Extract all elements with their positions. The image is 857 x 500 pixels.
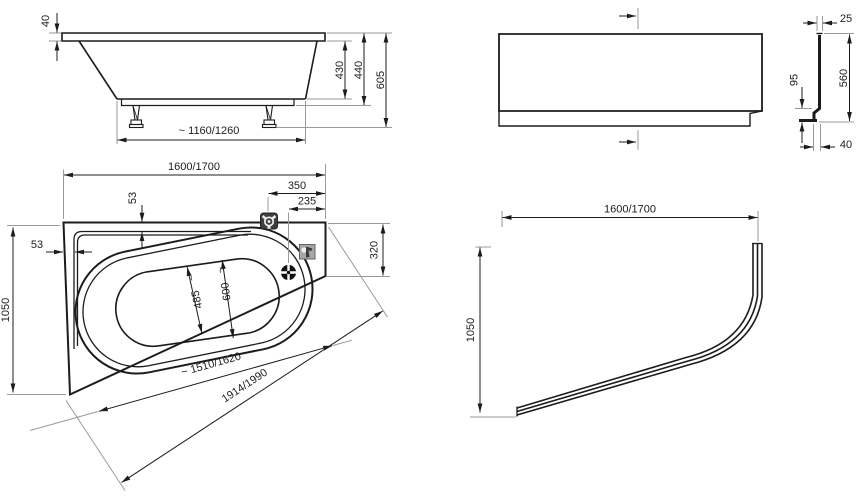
mixer-tap-icon [261, 213, 278, 229]
dim-label-rim-top: 53 [127, 192, 139, 204]
panel-profile-section: 25 560 95 40 [788, 13, 854, 151]
dim-rim-left: 53 [31, 239, 92, 252]
dim-label-well-top: 600 [219, 282, 233, 302]
dim-label-apron-length: 1600/1700 [604, 204, 656, 216]
dim-heights: 430 440 605 [277, 33, 392, 128]
panel-profile [814, 35, 820, 120]
dim-label-panel-foot: 40 [840, 139, 852, 151]
apron-curve-middle [517, 244, 758, 412]
dim-foot-40: 40 [800, 124, 852, 151]
dim-label-rim-thickness: 40 [40, 15, 52, 27]
dim-label-apron-width: 1050 [465, 318, 477, 342]
dim-label-corner-edge: 320 [368, 241, 380, 259]
dim-well-bottom: 485 ~ [185, 267, 205, 333]
dim-label-plan-width: 1050 [0, 298, 12, 322]
front-panel-face [499, 34, 762, 111]
dim-flange-25: 25 [803, 13, 852, 31]
dim-label-step: 95 [788, 74, 800, 86]
dim-label-well-length: ~ 1510/1620 [180, 351, 242, 379]
dim-feet-spacing: ~ 1160/1260 [117, 101, 306, 144]
dim-label-depth: 430 [334, 61, 346, 79]
side-left-wall [79, 41, 117, 99]
dim-well-length: ~ 1510/1620 [30, 340, 352, 430]
dim-panel-height-560: 560 [819, 34, 854, 123]
front-panel-base-strip [499, 111, 762, 126]
dim-corner-edge: 320 [327, 224, 390, 277]
side-rim [62, 33, 325, 41]
side-elevation-view: 40 430 440 605 ~ 1160/1260 [40, 13, 392, 144]
section-marker-top [619, 8, 638, 29]
dim-plan-length: 1600/1700 [64, 161, 326, 219]
dim-label-rim-left: 53 [31, 239, 43, 251]
dim-label-shell-height: 440 [353, 61, 365, 79]
plan-view: 1600/1700 350 235 53 53 [0, 161, 390, 491]
dim-label-total-height: 605 [375, 71, 387, 89]
support-channel [122, 99, 295, 106]
dim-faucet-offset: 350 [268, 180, 325, 211]
apron-view: 1600/1700 1050 [465, 204, 763, 418]
dim-apron-length: 1600/1700 [502, 204, 758, 242]
dim-label-faucet-offset: 350 [288, 180, 306, 192]
left-foot [130, 106, 144, 128]
side-right-wall [306, 41, 318, 99]
apron-curve-outer [517, 244, 762, 416]
right-foot [263, 106, 277, 128]
dim-step-95: 95 [788, 74, 812, 143]
overflow-icon [300, 245, 316, 260]
well-top-tilde: ~ [215, 266, 228, 274]
drain-icon [280, 264, 298, 282]
front-panel-view: 25 560 95 40 [499, 8, 854, 151]
section-marker-bottom [619, 130, 638, 150]
dim-label-feet-spacing: ~ 1160/1260 [179, 125, 240, 137]
apron-curve-inner [517, 244, 753, 409]
dim-apron-width: 1050 [465, 247, 516, 417]
dim-rim-top: 53 [127, 192, 142, 249]
technical-drawing-page: 40 430 440 605 ~ 1160/1260 [0, 0, 857, 500]
dim-label-plan-length: 1600/1700 [168, 161, 220, 173]
dim-label-waste-offset: 235 [298, 196, 316, 208]
dim-label-well-bottom: 485 [190, 289, 206, 310]
well-bottom-tilde: ~ [185, 273, 198, 282]
bathtub-technical-drawing: 40 430 440 605 ~ 1160/1260 [0, 0, 857, 500]
dim-label-flange: 25 [840, 13, 852, 25]
dim-rim-thickness: 40 [40, 13, 61, 61]
dim-label-diagonal: 1914/1990 [220, 367, 270, 406]
dim-label-panel-height: 560 [838, 69, 850, 87]
